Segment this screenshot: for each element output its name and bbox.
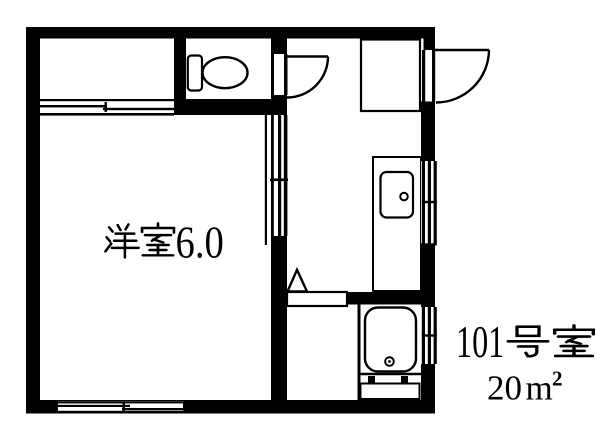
svg-text:m: m [526, 369, 553, 408]
svg-text:2: 2 [552, 367, 563, 391]
svg-text:20: 20 [487, 369, 522, 408]
svg-text:101: 101 [456, 316, 504, 367]
svg-text:6.0: 6.0 [176, 217, 224, 268]
